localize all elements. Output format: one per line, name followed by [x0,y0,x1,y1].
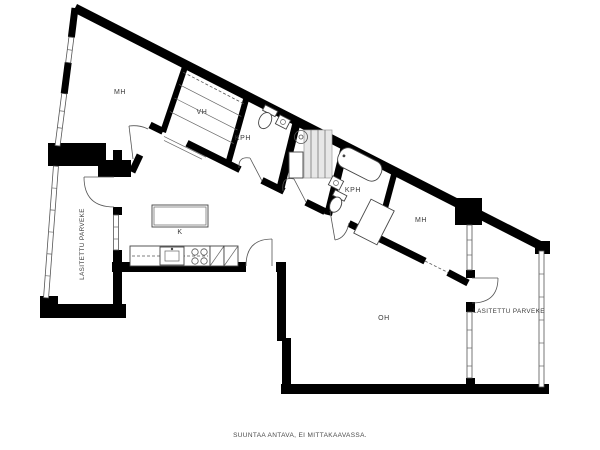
label-closet: VH [197,109,208,116]
kitchen-sink-icon [160,247,184,265]
fridge-icon [210,246,238,266]
window-left-2 [55,93,67,146]
label-bedroom-right: MH [415,217,427,224]
label-bathroom-right: KPH [345,187,361,194]
door-bedroom-left [129,126,148,159]
window-left-1 [66,37,74,63]
label-kitchen: K [177,229,182,236]
label-living-room: OH [378,315,390,322]
label-balcony-right: LASITETTU PARVEKE [473,308,545,315]
window-oh-balcony-1 [467,225,472,270]
label-bathroom-left: KPH [235,135,251,142]
window-oh-balcony-2 [467,312,472,378]
kitchen-fixtures [130,205,238,266]
floorplan-image: MH VH KPH KPH MH K OH LASITETTU PARVEKE … [0,0,600,450]
outer-walls [40,8,550,394]
door-balcony-left [84,177,114,207]
bathroom-left-fixtures [255,105,291,131]
kitchen-island [152,205,208,227]
door-entry [246,239,272,266]
door-shaft [283,179,306,203]
footer-note: SUUNTAA ANTAVA, EI MITTAKAAVASSA. [233,432,367,439]
label-bedroom-left: MH [114,89,126,96]
door-bathroom-right [330,211,349,240]
balcony-right-glazing [539,251,544,387]
floorplan-svg: MH VH KPH KPH MH K OH LASITETTU PARVEKE … [0,0,600,450]
balcony-left-glazing [44,166,59,298]
label-balcony-left: LASITETTU PARVEKE [79,208,86,280]
door-bathroom-left [239,158,262,181]
window-kitchen-balcony [114,215,119,250]
interior-walls [113,64,475,391]
door-balcony-right [472,278,498,303]
